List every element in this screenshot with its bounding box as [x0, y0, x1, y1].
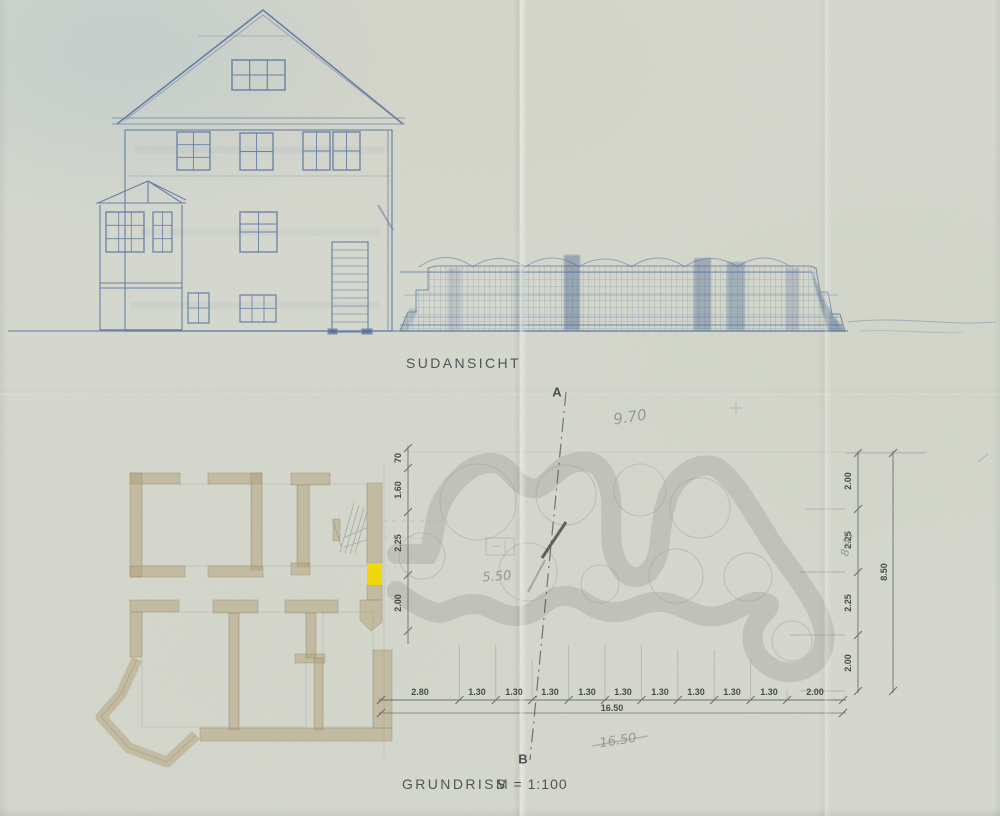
plan-scale: M = 1:100 [496, 776, 568, 792]
dim-right-total: 8.50 [879, 563, 889, 581]
paper-grain [0, 0, 1000, 816]
section-marker-b: B [518, 752, 527, 767]
greenhouse-elevation [400, 255, 845, 331]
dim-bottom-0: 2.80 [411, 687, 429, 697]
dim-right-3: 2.00 [843, 654, 853, 672]
dim-bottom-2: 1.30 [505, 687, 523, 697]
dim-bottom-5: 1.30 [614, 687, 632, 697]
dim-bottom-6: 1.30 [651, 687, 669, 697]
dim-bottom-4: 1.30 [578, 687, 596, 697]
drawing-canvas [0, 0, 1000, 816]
scanned-blueprint-sheet: SUDANSICHT GRUNDRISS M = 1:100 A B 70 1.… [0, 0, 1000, 816]
highlighted-wall-segment [367, 563, 382, 585]
dim-bottom-total: 16.50 [601, 703, 624, 713]
dim-bottom-3: 1.30 [541, 687, 559, 697]
dim-left-1: 1.60 [393, 481, 403, 499]
dim-bottom-1: 1.30 [468, 687, 486, 697]
dim-right-0: 2.00 [843, 472, 853, 490]
dim-right-2: 2.25 [843, 594, 853, 612]
dim-left-3: 2.00 [393, 594, 403, 612]
dim-bottom-9: 1.30 [760, 687, 778, 697]
plan-title: GRUNDRISS [402, 776, 508, 792]
elevation-title: SUDANSICHT [406, 355, 521, 371]
dim-left-0: 70 [393, 453, 403, 463]
dim-bottom-10: 2.00 [806, 687, 824, 697]
dim-bottom-8: 1.30 [723, 687, 741, 697]
section-marker-a: A [552, 385, 561, 400]
pencil-note-inner: 5.50 [482, 569, 512, 586]
dim-left-2: 2.25 [393, 534, 403, 552]
dim-bottom-7: 1.30 [687, 687, 705, 697]
